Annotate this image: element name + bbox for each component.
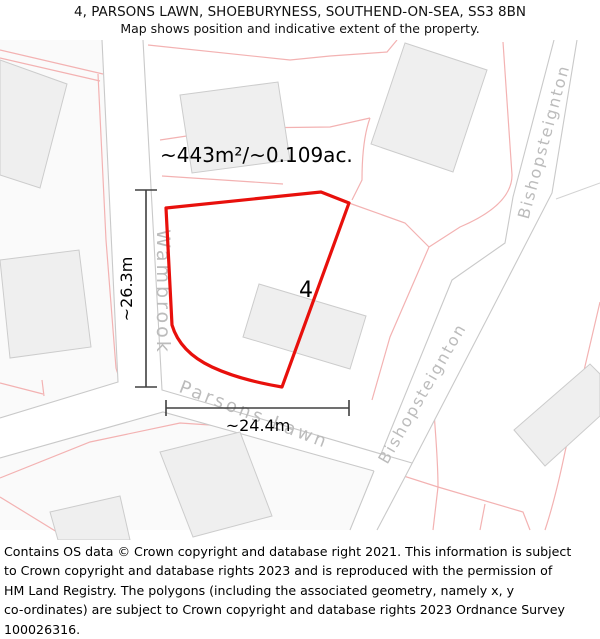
footer-line: Contains OS data © Crown copyright and d…	[4, 542, 596, 561]
building	[371, 43, 487, 172]
header: 4, PARSONS LAWN, SHOEBURYNESS, SOUTHEND-…	[0, 0, 600, 40]
footer-line: HM Land Registry. The polygons (includin…	[4, 581, 596, 600]
copyright-footer: Contains OS data © Crown copyright and d…	[0, 540, 600, 639]
footer-line: to Crown copyright and database rights 2…	[4, 561, 596, 580]
footer-line: co-ordinates) are subject to Crown copyr…	[4, 600, 596, 619]
building	[0, 250, 91, 358]
page-subtitle: Map shows position and indicative extent…	[0, 21, 600, 37]
plot-number-label: 4	[299, 278, 313, 303]
dimension-horizontal-label: ~24.4m	[226, 416, 291, 435]
page-title: 4, PARSONS LAWN, SHOEBURYNESS, SOUTHEND-…	[0, 4, 600, 21]
area-label: ~443m²/~0.109ac.	[160, 143, 353, 167]
map-container: Wambrook Parsons Lawn Bishopsteignton Bi…	[0, 40, 600, 540]
building	[514, 364, 600, 466]
footer-line: 100026316.	[4, 620, 596, 639]
property-map: Wambrook Parsons Lawn Bishopsteignton Bi…	[0, 40, 600, 540]
dimension-vertical-label: ~26.3m	[117, 257, 136, 322]
